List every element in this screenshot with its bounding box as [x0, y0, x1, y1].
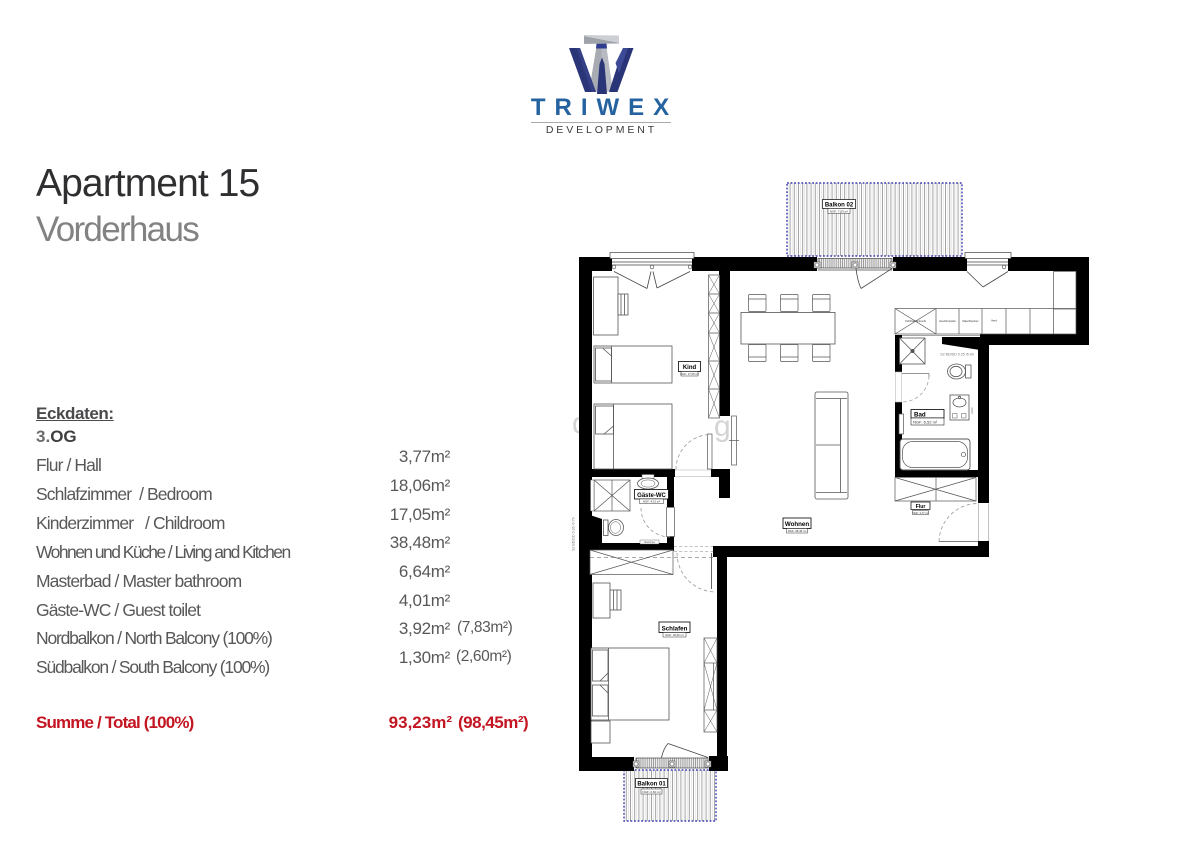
- svg-text:Bad: Bad: [914, 412, 926, 419]
- svg-text:Kind: Kind: [683, 365, 697, 371]
- svg-text:Balkon 02: Balkon 02: [825, 203, 854, 209]
- svg-text:Schlafen: Schlafen: [662, 626, 688, 633]
- svg-text:Gäste-WC: Gäste-WC: [637, 493, 666, 499]
- svg-text:NGF: 38,48 m²: NGF: 38,48 m²: [788, 529, 807, 533]
- svg-text:NGF: 7,83 m²: NGF: 7,83 m²: [830, 210, 848, 214]
- svg-text:Abluft: Abluft: [970, 407, 974, 414]
- svg-text:S2 BD/DD 0.25 /6.90: S2 BD/DD 0.25 /6.90: [940, 353, 974, 357]
- svg-text:Balkon 01: Balkon 01: [637, 782, 666, 788]
- svg-text:S2 BD/DD 0.26 /0.79: S2 BD/DD 0.26 /0.79: [572, 517, 576, 551]
- svg-text:NGF: 2,60 m²: NGF: 2,60 m²: [642, 790, 660, 794]
- svg-text:NGF: 17,05 m²: NGF: 17,05 m²: [680, 372, 699, 376]
- svg-text:Flur: Flur: [916, 504, 926, 510]
- svg-text:Heizkörper: Heizkörper: [644, 541, 656, 544]
- svg-text:NGF: 4,01 m²: NGF: 4,01 m²: [643, 500, 660, 504]
- svg-text:Wohnen: Wohnen: [785, 521, 810, 528]
- svg-text:Geschirrspüler: Geschirrspüler: [939, 319, 956, 323]
- svg-text:NGF: 3,77 m²: NGF: 3,77 m²: [913, 511, 929, 515]
- svg-text:NGF: 6,52 m²: NGF: 6,52 m²: [913, 420, 938, 425]
- svg-text:NGF: 18,06 m²: NGF: 18,06 m²: [665, 633, 684, 637]
- svg-text:Herd: Herd: [991, 319, 997, 323]
- svg-text:Waschbecken: Waschbecken: [962, 319, 979, 323]
- svg-text:Kühl/Gefrierkombi: Kühl/Gefrierkombi: [905, 319, 926, 323]
